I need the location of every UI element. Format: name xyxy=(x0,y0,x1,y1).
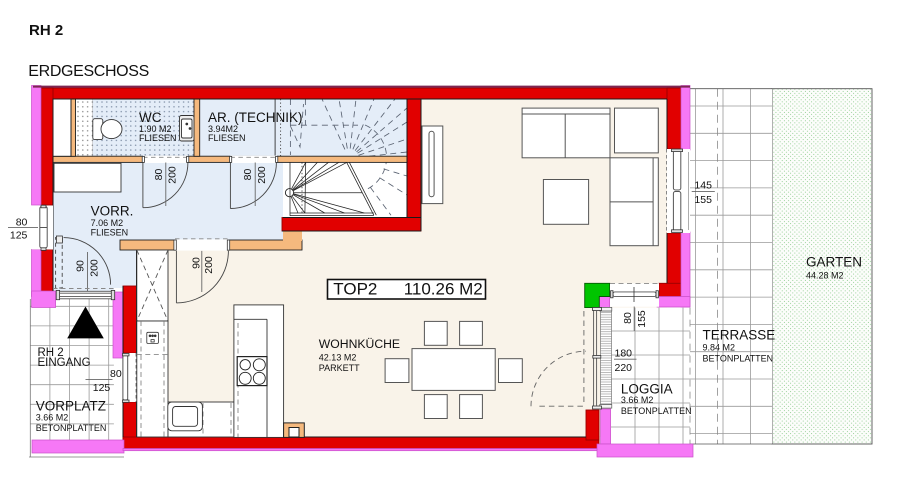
svg-text:VORPLATZ: VORPLATZ xyxy=(36,399,106,414)
svg-text:200: 200 xyxy=(203,256,215,274)
svg-text:9.84 M2: 9.84 M2 xyxy=(703,343,736,353)
svg-text:BETONPLATTEN: BETONPLATTEN xyxy=(703,354,774,364)
svg-text:TOP2: TOP2 xyxy=(333,280,377,299)
svg-text:125: 125 xyxy=(10,230,28,242)
svg-text:GARTEN: GARTEN xyxy=(806,255,862,270)
svg-text:3.66 M2: 3.66 M2 xyxy=(36,413,69,423)
svg-text:80: 80 xyxy=(110,368,122,380)
svg-text:80: 80 xyxy=(242,169,254,181)
svg-text:FLIESEN: FLIESEN xyxy=(139,133,177,143)
svg-text:145: 145 xyxy=(694,179,712,191)
svg-text:80: 80 xyxy=(153,169,165,181)
svg-text:42.13 M2: 42.13 M2 xyxy=(319,353,357,363)
svg-text:200: 200 xyxy=(167,166,179,184)
svg-text:AR. (TECHNIK): AR. (TECHNIK) xyxy=(208,110,303,125)
svg-text:TERRASSE: TERRASSE xyxy=(703,328,776,343)
svg-text:200: 200 xyxy=(88,259,100,277)
svg-text:PARKETT: PARKETT xyxy=(319,363,360,373)
svg-text:155: 155 xyxy=(636,310,648,328)
svg-text:WC: WC xyxy=(139,110,162,125)
svg-text:220: 220 xyxy=(615,362,633,374)
svg-text:80: 80 xyxy=(16,216,28,228)
svg-text:VORR.: VORR. xyxy=(91,204,134,219)
svg-text:180: 180 xyxy=(615,347,633,359)
svg-text:FLIESEN: FLIESEN xyxy=(208,133,246,143)
svg-text:7.06 M2: 7.06 M2 xyxy=(91,218,124,228)
svg-text:90: 90 xyxy=(191,257,203,269)
svg-text:44.28 M2: 44.28 M2 xyxy=(806,271,844,281)
svg-text:ERDGESCHOSS: ERDGESCHOSS xyxy=(28,63,149,80)
svg-text:EINGANG: EINGANG xyxy=(38,357,91,369)
svg-text:155: 155 xyxy=(694,194,712,206)
svg-text:FLIESEN: FLIESEN xyxy=(91,228,129,238)
svg-text:80: 80 xyxy=(622,312,634,324)
svg-text:3.66 M2: 3.66 M2 xyxy=(621,395,654,405)
svg-text:200: 200 xyxy=(256,166,268,184)
svg-text:WOHNKÜCHE: WOHNKÜCHE xyxy=(319,337,400,351)
svg-text:110.26 M2: 110.26 M2 xyxy=(404,280,483,299)
svg-text:BETONPLATTEN: BETONPLATTEN xyxy=(36,423,107,433)
svg-text:RH 2: RH 2 xyxy=(29,22,63,39)
svg-text:125: 125 xyxy=(93,382,111,394)
svg-text:90: 90 xyxy=(75,260,87,272)
svg-text:BETONPLATTEN: BETONPLATTEN xyxy=(621,406,692,416)
